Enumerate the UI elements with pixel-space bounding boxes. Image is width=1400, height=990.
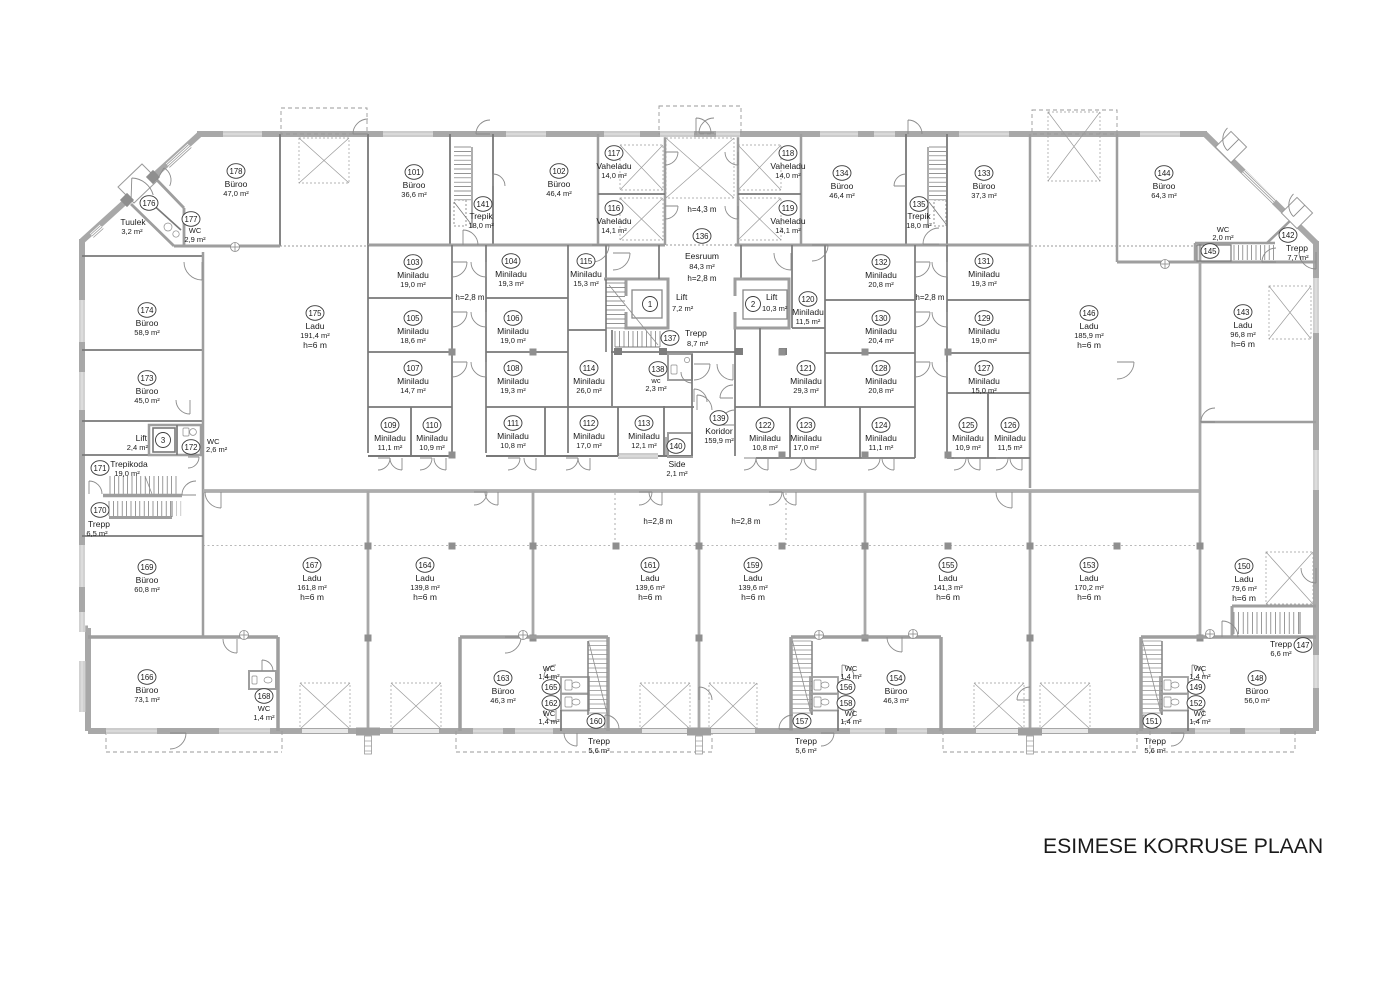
svg-text:h=6 m: h=6 m bbox=[1077, 592, 1101, 602]
svg-text:115: 115 bbox=[580, 257, 593, 266]
svg-text:Miniladu: Miniladu bbox=[497, 326, 529, 336]
svg-text:Miniladu: Miniladu bbox=[968, 269, 1000, 279]
svg-text:46,3 m²: 46,3 m² bbox=[490, 696, 516, 705]
svg-text:Miniladu: Miniladu bbox=[749, 433, 781, 443]
svg-text:139,6 m²: 139,6 m² bbox=[635, 583, 665, 592]
svg-text:138: 138 bbox=[651, 365, 664, 374]
svg-text:162: 162 bbox=[544, 699, 557, 708]
svg-text:11,5 m²: 11,5 m² bbox=[998, 443, 1023, 452]
svg-text:Trepikoda: Trepikoda bbox=[110, 459, 148, 469]
svg-text:60,8 m²: 60,8 m² bbox=[134, 585, 160, 594]
svg-text:127: 127 bbox=[977, 364, 990, 373]
svg-text:1,4 m²: 1,4 m² bbox=[1189, 672, 1211, 681]
svg-text:1,4 m²: 1,4 m² bbox=[253, 713, 275, 722]
svg-text:165: 165 bbox=[544, 683, 558, 692]
svg-text:46,4 m²: 46,4 m² bbox=[829, 191, 855, 200]
svg-text:14,7 m²: 14,7 m² bbox=[400, 386, 426, 395]
svg-text:Büroo: Büroo bbox=[136, 386, 159, 396]
svg-text:h=6 m: h=6 m bbox=[1231, 339, 1255, 349]
svg-text:137: 137 bbox=[663, 334, 676, 343]
svg-text:84,3 m²: 84,3 m² bbox=[689, 262, 715, 271]
svg-text:h=4,3 m: h=4,3 m bbox=[687, 205, 716, 214]
svg-text:10,9 m²: 10,9 m² bbox=[955, 443, 981, 452]
svg-text:6,6 m²: 6,6 m² bbox=[1270, 649, 1292, 658]
svg-text:14,1 m²: 14,1 m² bbox=[775, 226, 801, 235]
svg-text:11,1 m²: 11,1 m² bbox=[869, 443, 894, 452]
svg-text:Büroo: Büroo bbox=[403, 180, 426, 190]
svg-text:122: 122 bbox=[758, 421, 771, 430]
svg-text:Miniladu: Miniladu bbox=[374, 433, 406, 443]
svg-text:156: 156 bbox=[839, 683, 852, 692]
svg-text:141: 141 bbox=[476, 200, 489, 209]
svg-text:26,0 m²: 26,0 m² bbox=[576, 386, 602, 395]
svg-text:h=6 m: h=6 m bbox=[303, 340, 327, 350]
svg-text:Ladu: Ladu bbox=[306, 321, 325, 331]
svg-text:Miniladu: Miniladu bbox=[397, 376, 429, 386]
svg-text:h=6 m: h=6 m bbox=[1077, 340, 1101, 350]
svg-text:2,9 m²: 2,9 m² bbox=[184, 235, 206, 244]
svg-text:Miniladu: Miniladu bbox=[865, 326, 897, 336]
svg-text:159: 159 bbox=[746, 561, 759, 570]
svg-text:20,4 m²: 20,4 m² bbox=[868, 336, 894, 345]
svg-text:Miniladu: Miniladu bbox=[397, 270, 429, 280]
svg-text:h=2,8 m: h=2,8 m bbox=[687, 274, 716, 283]
svg-text:132: 132 bbox=[874, 258, 887, 267]
svg-text:170: 170 bbox=[93, 506, 107, 515]
svg-text:119: 119 bbox=[782, 204, 794, 213]
svg-text:19,3 m²: 19,3 m² bbox=[971, 279, 997, 288]
svg-text:h=6 m: h=6 m bbox=[1232, 593, 1256, 603]
svg-text:Ladu: Ladu bbox=[939, 573, 958, 583]
svg-text:h=6 m: h=6 m bbox=[638, 592, 662, 602]
svg-text:h=6 m: h=6 m bbox=[741, 592, 765, 602]
svg-text:Ladu: Ladu bbox=[1080, 321, 1099, 331]
svg-text:64,3 m²: 64,3 m² bbox=[1151, 191, 1177, 200]
svg-text:19,0 m²: 19,0 m² bbox=[400, 280, 426, 289]
svg-text:158: 158 bbox=[839, 699, 852, 708]
svg-text:Ladu: Ladu bbox=[744, 573, 763, 583]
svg-text:129: 129 bbox=[977, 314, 990, 323]
svg-text:Miniladu: Miniladu bbox=[790, 376, 822, 386]
svg-text:171: 171 bbox=[93, 464, 106, 473]
svg-text:Miniladu: Miniladu bbox=[570, 269, 602, 279]
svg-text:191,4 m²: 191,4 m² bbox=[300, 331, 330, 340]
svg-text:159,9 m²: 159,9 m² bbox=[704, 436, 734, 445]
svg-text:106: 106 bbox=[506, 314, 519, 323]
svg-text:108: 108 bbox=[506, 364, 519, 373]
svg-text:18,0 m²: 18,0 m² bbox=[468, 221, 494, 230]
svg-text:Büroo: Büroo bbox=[885, 686, 908, 696]
svg-text:Miniladu: Miniladu bbox=[968, 326, 1000, 336]
svg-text:79,6 m²: 79,6 m² bbox=[1231, 584, 1257, 593]
svg-text:19,3 m²: 19,3 m² bbox=[500, 386, 526, 395]
svg-text:133: 133 bbox=[977, 169, 990, 178]
svg-text:Miniladu: Miniladu bbox=[573, 376, 605, 386]
svg-text:136: 136 bbox=[695, 232, 708, 241]
svg-text:18,0 m²: 18,0 m² bbox=[906, 221, 932, 230]
svg-text:19,3 m²: 19,3 m² bbox=[498, 279, 524, 288]
svg-text:29,3 m²: 29,3 m² bbox=[793, 386, 819, 395]
svg-text:116: 116 bbox=[608, 204, 620, 213]
svg-text:177: 177 bbox=[184, 215, 197, 224]
svg-text:107: 107 bbox=[406, 364, 419, 373]
svg-text:148: 148 bbox=[1250, 674, 1263, 683]
svg-text:102: 102 bbox=[552, 167, 565, 176]
svg-text:124: 124 bbox=[874, 421, 888, 430]
svg-text:104: 104 bbox=[504, 257, 518, 266]
svg-text:2,4 m²: 2,4 m² bbox=[127, 443, 149, 452]
svg-text:5,6 m²: 5,6 m² bbox=[1144, 746, 1166, 755]
svg-text:Ladu: Ladu bbox=[641, 573, 660, 583]
svg-text:173: 173 bbox=[140, 374, 153, 383]
svg-text:47,0 m²: 47,0 m² bbox=[223, 189, 249, 198]
svg-text:14,0 m²: 14,0 m² bbox=[601, 171, 627, 180]
svg-text:113: 113 bbox=[638, 419, 650, 428]
svg-text:139,8 m²: 139,8 m² bbox=[410, 583, 440, 592]
svg-text:2,0 m²: 2,0 m² bbox=[1212, 233, 1234, 242]
svg-text:h=6 m: h=6 m bbox=[936, 592, 960, 602]
svg-text:Büroo: Büroo bbox=[831, 181, 854, 191]
svg-text:Tuulek: Tuulek bbox=[120, 217, 146, 227]
svg-text:131: 131 bbox=[977, 257, 990, 266]
svg-text:123: 123 bbox=[799, 421, 812, 430]
svg-text:1,4 m²: 1,4 m² bbox=[840, 717, 862, 726]
svg-text:130: 130 bbox=[874, 314, 888, 323]
svg-text:178: 178 bbox=[229, 167, 242, 176]
svg-text:103: 103 bbox=[406, 258, 419, 267]
svg-text:Vaheladu: Vaheladu bbox=[770, 161, 806, 171]
svg-text:17,0 m²: 17,0 m² bbox=[576, 441, 602, 450]
svg-text:12,1 m²: 12,1 m² bbox=[631, 441, 657, 450]
svg-text:Miniladu: Miniladu bbox=[790, 433, 822, 443]
svg-text:46,3 m²: 46,3 m² bbox=[883, 696, 909, 705]
svg-text:155: 155 bbox=[941, 561, 955, 570]
svg-text:5,6 m²: 5,6 m² bbox=[588, 746, 610, 755]
svg-text:Ladu: Ladu bbox=[303, 573, 322, 583]
svg-text:Miniladu: Miniladu bbox=[968, 376, 1000, 386]
svg-text:Büroo: Büroo bbox=[548, 179, 571, 189]
svg-text:Miniladu: Miniladu bbox=[865, 433, 897, 443]
svg-text:7,7 m²: 7,7 m² bbox=[1287, 253, 1309, 262]
svg-text:Koridor: Koridor bbox=[705, 426, 733, 436]
svg-text:145: 145 bbox=[1203, 247, 1217, 256]
svg-text:Büroo: Büroo bbox=[225, 179, 248, 189]
svg-text:h=2,8 m: h=2,8 m bbox=[455, 293, 484, 302]
svg-text:142: 142 bbox=[1281, 231, 1294, 240]
svg-text:15,0 m²: 15,0 m² bbox=[971, 386, 997, 395]
svg-text:73,1 m²: 73,1 m² bbox=[134, 695, 160, 704]
svg-text:58,9 m²: 58,9 m² bbox=[134, 328, 160, 337]
svg-text:168: 168 bbox=[257, 692, 270, 701]
svg-text:10,9 m²: 10,9 m² bbox=[419, 443, 445, 452]
svg-text:Miniladu: Miniladu bbox=[792, 307, 824, 317]
svg-text:2,6 m²: 2,6 m² bbox=[206, 445, 228, 454]
svg-text:111: 111 bbox=[507, 419, 519, 428]
svg-text:157: 157 bbox=[795, 717, 808, 726]
svg-text:Lift: Lift bbox=[136, 433, 148, 443]
svg-text:Miniladu: Miniladu bbox=[397, 326, 429, 336]
svg-text:10,8 m²: 10,8 m² bbox=[752, 443, 778, 452]
svg-text:Trepp: Trepp bbox=[1286, 243, 1308, 253]
svg-text:Miniladu: Miniladu bbox=[416, 433, 448, 443]
svg-text:175: 175 bbox=[308, 309, 322, 318]
svg-text:110: 110 bbox=[426, 421, 439, 430]
svg-text:149: 149 bbox=[1189, 683, 1202, 692]
svg-text:Büroo: Büroo bbox=[136, 575, 159, 585]
svg-text:20,8 m²: 20,8 m² bbox=[868, 386, 894, 395]
svg-text:121: 121 bbox=[799, 364, 812, 373]
svg-text:151: 151 bbox=[1145, 717, 1158, 726]
svg-text:134: 134 bbox=[835, 169, 849, 178]
svg-text:170,2 m²: 170,2 m² bbox=[1074, 583, 1104, 592]
svg-text:45,0 m²: 45,0 m² bbox=[134, 396, 160, 405]
svg-text:Miniladu: Miniladu bbox=[952, 433, 984, 443]
svg-text:2,3 m²: 2,3 m² bbox=[645, 384, 667, 393]
svg-text:3,2 m²: 3,2 m² bbox=[121, 227, 143, 236]
svg-text:Büroo: Büroo bbox=[1246, 686, 1269, 696]
svg-text:126: 126 bbox=[1003, 421, 1016, 430]
svg-text:185,9 m²: 185,9 m² bbox=[1074, 331, 1104, 340]
svg-text:160: 160 bbox=[589, 717, 603, 726]
svg-text:Büroo: Büroo bbox=[1153, 181, 1176, 191]
svg-text:Ladu: Ladu bbox=[1235, 574, 1254, 584]
svg-text:h=2,8 m: h=2,8 m bbox=[643, 517, 672, 526]
svg-text:8,7 m²: 8,7 m² bbox=[687, 339, 709, 348]
svg-text:1,4 m²: 1,4 m² bbox=[538, 717, 560, 726]
svg-text:Miniladu: Miniladu bbox=[865, 270, 897, 280]
svg-text:Vaheladu: Vaheladu bbox=[770, 216, 806, 226]
svg-text:174: 174 bbox=[140, 306, 154, 315]
svg-text:2: 2 bbox=[751, 300, 755, 309]
svg-text:1,4 m²: 1,4 m² bbox=[1189, 717, 1211, 726]
svg-text:139,6 m²: 139,6 m² bbox=[738, 583, 768, 592]
svg-text:140: 140 bbox=[669, 442, 683, 451]
svg-text:3: 3 bbox=[161, 436, 165, 445]
svg-text:Vaheladu: Vaheladu bbox=[596, 161, 632, 171]
svg-text:96,8 m²: 96,8 m² bbox=[1230, 330, 1256, 339]
svg-text:161,8 m²: 161,8 m² bbox=[297, 583, 327, 592]
svg-text:128: 128 bbox=[874, 364, 887, 373]
svg-text:11,1 m²: 11,1 m² bbox=[378, 443, 403, 452]
svg-text:11,5 m²: 11,5 m² bbox=[796, 317, 821, 326]
svg-text:Side: Side bbox=[668, 459, 685, 469]
svg-text:WC: WC bbox=[258, 704, 271, 713]
svg-text:Büroo: Büroo bbox=[136, 685, 159, 695]
svg-text:Trepik: Trepik bbox=[907, 211, 931, 221]
svg-text:Lift: Lift bbox=[766, 292, 778, 302]
svg-text:14,1 m²: 14,1 m² bbox=[601, 226, 627, 235]
svg-text:Lift: Lift bbox=[676, 292, 688, 302]
svg-text:117: 117 bbox=[608, 149, 620, 158]
svg-text:120: 120 bbox=[801, 295, 815, 304]
svg-text:114: 114 bbox=[583, 364, 596, 373]
svg-text:1: 1 bbox=[648, 300, 652, 309]
svg-text:164: 164 bbox=[418, 561, 432, 570]
svg-text:17,0 m²: 17,0 m² bbox=[793, 443, 819, 452]
svg-text:Trepp: Trepp bbox=[795, 736, 817, 746]
svg-text:7,2 m²: 7,2 m² bbox=[672, 304, 694, 313]
svg-text:112: 112 bbox=[583, 419, 595, 428]
svg-text:Miniladu: Miniladu bbox=[497, 376, 529, 386]
svg-text:Miniladu: Miniladu bbox=[497, 431, 529, 441]
svg-text:Büroo: Büroo bbox=[492, 686, 515, 696]
svg-text:Miniladu: Miniladu bbox=[865, 376, 897, 386]
svg-text:Vaheladu: Vaheladu bbox=[596, 216, 632, 226]
svg-text:105: 105 bbox=[406, 314, 420, 323]
svg-text:Eesruum: Eesruum bbox=[685, 251, 719, 261]
svg-text:2,1 m²: 2,1 m² bbox=[666, 469, 688, 478]
svg-text:10,8 m²: 10,8 m² bbox=[500, 441, 526, 450]
svg-text:Miniladu: Miniladu bbox=[994, 433, 1026, 443]
svg-text:10,3 m²: 10,3 m² bbox=[762, 304, 788, 313]
svg-text:Trepp: Trepp bbox=[588, 736, 610, 746]
svg-text:163: 163 bbox=[496, 674, 509, 683]
svg-text:WC: WC bbox=[189, 226, 202, 235]
svg-text:Trepp: Trepp bbox=[1144, 736, 1166, 746]
svg-text:18,6 m²: 18,6 m² bbox=[400, 336, 426, 345]
svg-text:ESIMESE KORRUSE PLAAN: ESIMESE KORRUSE PLAAN bbox=[1043, 835, 1323, 858]
svg-text:15,3 m²: 15,3 m² bbox=[573, 279, 599, 288]
svg-text:h=2,8 m: h=2,8 m bbox=[915, 293, 944, 302]
svg-text:Miniladu: Miniladu bbox=[573, 431, 605, 441]
svg-text:h=2,8 m: h=2,8 m bbox=[731, 517, 760, 526]
svg-text:Ladu: Ladu bbox=[416, 573, 435, 583]
svg-text:176: 176 bbox=[142, 199, 155, 208]
svg-text:143: 143 bbox=[1236, 308, 1249, 317]
svg-text:Trepik: Trepik bbox=[469, 211, 493, 221]
svg-text:56,0 m²: 56,0 m² bbox=[1244, 696, 1270, 705]
svg-text:36,6 m²: 36,6 m² bbox=[401, 190, 427, 199]
svg-text:118: 118 bbox=[782, 149, 794, 158]
svg-text:147: 147 bbox=[1296, 641, 1309, 650]
svg-text:141,3 m²: 141,3 m² bbox=[933, 583, 963, 592]
svg-text:19,0 m²: 19,0 m² bbox=[114, 469, 140, 478]
svg-text:19,0 m²: 19,0 m² bbox=[971, 336, 997, 345]
svg-text:14,0 m²: 14,0 m² bbox=[775, 171, 801, 180]
svg-text:h=6 m: h=6 m bbox=[413, 592, 437, 602]
svg-text:166: 166 bbox=[140, 673, 153, 682]
svg-text:152: 152 bbox=[1189, 699, 1202, 708]
svg-text:125: 125 bbox=[961, 421, 975, 430]
svg-text:150: 150 bbox=[1237, 562, 1251, 571]
svg-text:153: 153 bbox=[1082, 561, 1095, 570]
svg-text:Miniladu: Miniladu bbox=[628, 431, 660, 441]
svg-text:6,5 m²: 6,5 m² bbox=[86, 529, 108, 538]
svg-text:139: 139 bbox=[712, 414, 725, 423]
svg-text:167: 167 bbox=[305, 561, 318, 570]
svg-text:20,8 m²: 20,8 m² bbox=[868, 280, 894, 289]
svg-text:146: 146 bbox=[1082, 309, 1095, 318]
svg-text:Ladu: Ladu bbox=[1234, 320, 1253, 330]
svg-text:Trepp: Trepp bbox=[685, 328, 707, 338]
svg-text:161: 161 bbox=[643, 561, 656, 570]
svg-text:5,6 m²: 5,6 m² bbox=[795, 746, 817, 755]
svg-text:h=6 m: h=6 m bbox=[300, 592, 324, 602]
svg-text:46,4 m²: 46,4 m² bbox=[546, 189, 572, 198]
svg-text:Büroo: Büroo bbox=[136, 318, 159, 328]
svg-text:109: 109 bbox=[383, 421, 396, 430]
svg-text:Miniladu: Miniladu bbox=[495, 269, 527, 279]
svg-text:169: 169 bbox=[140, 563, 153, 572]
svg-text:154: 154 bbox=[889, 674, 903, 683]
svg-text:Trepp: Trepp bbox=[1270, 639, 1292, 649]
svg-text:144: 144 bbox=[1157, 169, 1171, 178]
svg-text:101: 101 bbox=[407, 168, 420, 177]
svg-text:Ladu: Ladu bbox=[1080, 573, 1099, 583]
svg-text:Trepp: Trepp bbox=[88, 519, 110, 529]
svg-text:Büroo: Büroo bbox=[973, 181, 996, 191]
svg-text:19,0 m²: 19,0 m² bbox=[500, 336, 526, 345]
svg-text:135: 135 bbox=[912, 200, 926, 209]
svg-text:172: 172 bbox=[184, 443, 197, 452]
svg-text:37,3 m²: 37,3 m² bbox=[971, 191, 997, 200]
